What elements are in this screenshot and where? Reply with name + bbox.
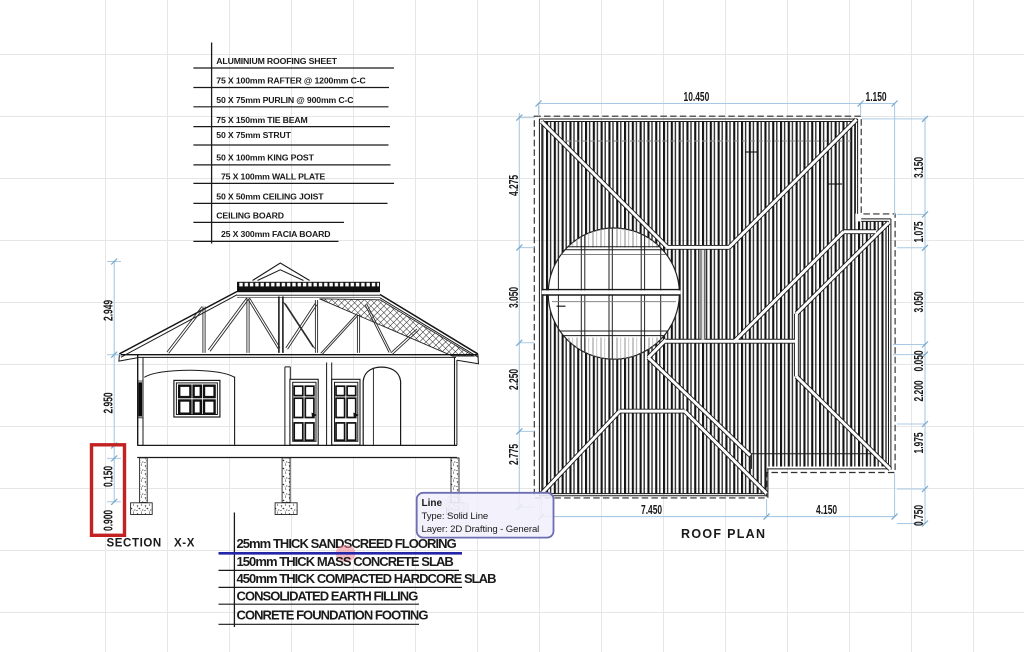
svg-text:X-X: X-X	[174, 538, 195, 550]
svg-text:50 X 75mm PURLIN @ 900mm C-C: 50 X 75mm PURLIN @ 900mm C-C	[216, 95, 354, 105]
svg-text:4.150: 4.150	[816, 503, 837, 517]
svg-text:2.200: 2.200	[912, 380, 926, 401]
svg-text:0.150: 0.150	[102, 466, 116, 487]
svg-text:75 X 100mm WALL PLATE: 75 X 100mm WALL PLATE	[221, 171, 326, 181]
svg-text:10.450: 10.450	[684, 90, 710, 104]
svg-text:50 X 75mm STRUT: 50 X 75mm STRUT	[216, 130, 291, 140]
svg-text:CONSOLIDATED EARTH FILLING: CONSOLIDATED EARTH FILLING	[237, 588, 419, 603]
svg-text:4.275: 4.275	[507, 175, 521, 196]
svg-text:2.950: 2.950	[102, 392, 116, 413]
svg-text:450mm THICK COMPACTED HARDCORE: 450mm THICK COMPACTED HARDCORE SLAB	[237, 571, 497, 586]
svg-text:0.750: 0.750	[912, 505, 926, 526]
svg-text:Type: Solid Line: Type: Solid Line	[422, 511, 489, 522]
svg-text:ROOF PLAN: ROOF PLAN	[681, 527, 766, 541]
svg-text:1.150: 1.150	[866, 90, 887, 104]
svg-text:2.949: 2.949	[102, 300, 116, 321]
svg-text:3.050: 3.050	[912, 291, 926, 312]
svg-text:150mm THICK MASS CONCRETE SLAB: 150mm THICK MASS CONCRETE SLAB	[237, 554, 454, 569]
svg-text:CEILING BOARD: CEILING BOARD	[216, 210, 284, 220]
svg-text:7.450: 7.450	[641, 503, 662, 517]
svg-text:75 X 100mm RAFTER @ 1200mm C-C: 75 X 100mm RAFTER @ 1200mm C-C	[216, 76, 366, 86]
svg-text:50 X 50mm CEILING JOIST: 50 X 50mm CEILING JOIST	[216, 191, 324, 201]
svg-text:3.150: 3.150	[912, 157, 926, 178]
svg-text:0.900: 0.900	[102, 510, 116, 531]
svg-text:SECTION: SECTION	[107, 538, 162, 550]
svg-text:0.050: 0.050	[912, 350, 926, 371]
svg-text:3.050: 3.050	[507, 287, 521, 308]
svg-text:Layer: 2D Drafting - General: Layer: 2D Drafting - General	[422, 524, 540, 535]
svg-text:1.075: 1.075	[912, 221, 926, 242]
svg-text:CONRETE FOUNDATION FOOTING: CONRETE FOUNDATION FOOTING	[237, 608, 429, 623]
svg-text:ALUMINIUM ROOFING SHEET: ALUMINIUM ROOFING SHEET	[216, 56, 337, 66]
svg-text:2.250: 2.250	[507, 369, 521, 390]
svg-text:50 X 100mm KING POST: 50 X 100mm KING POST	[216, 152, 314, 162]
svg-text:1.975: 1.975	[912, 432, 926, 453]
svg-text:25 X 300mm FACIA BOARD: 25 X 300mm FACIA BOARD	[221, 229, 330, 239]
svg-text:2.775: 2.775	[507, 444, 521, 465]
svg-text:75 X 150mm TIE BEAM: 75 X 150mm TIE BEAM	[216, 115, 307, 125]
svg-text:Line: Line	[422, 498, 443, 509]
